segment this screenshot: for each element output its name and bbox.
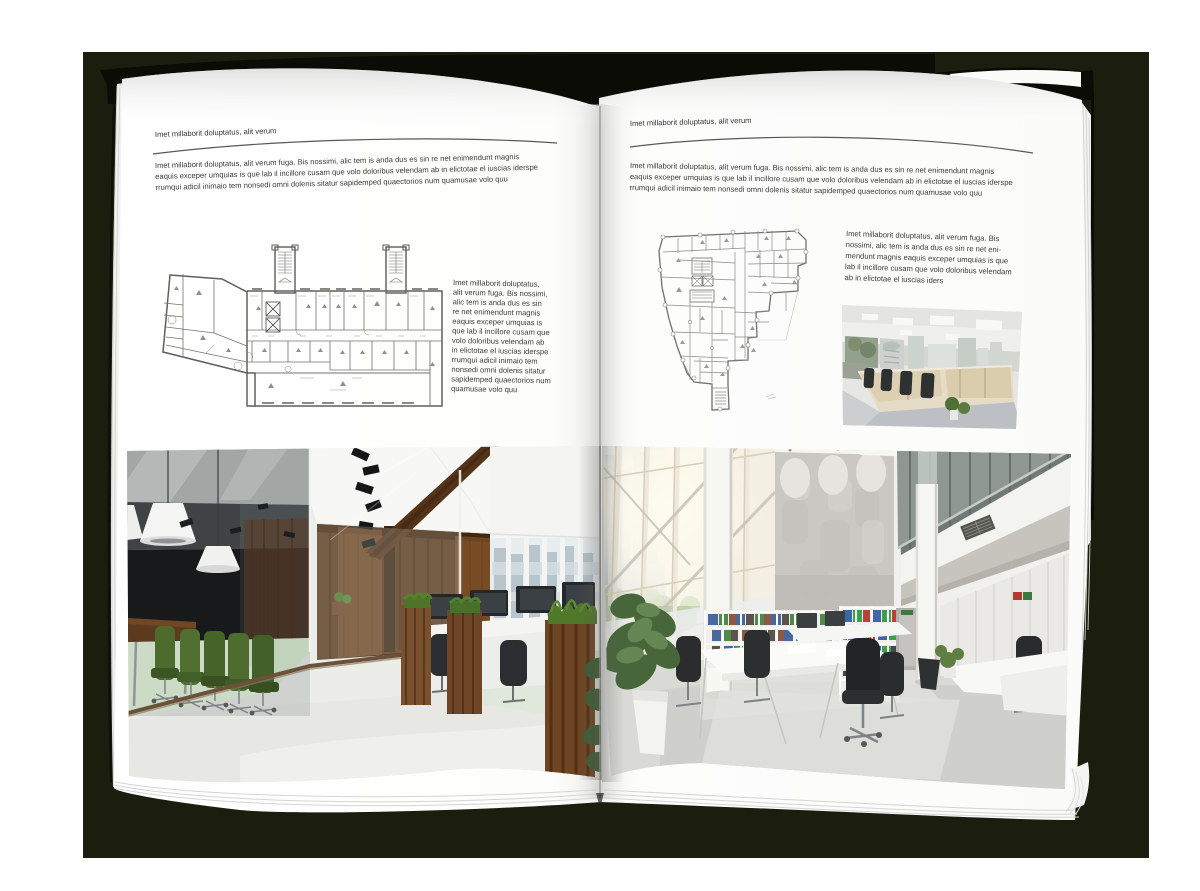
svg-text:quamusae volo quu: quamusae volo quu — [451, 384, 517, 394]
